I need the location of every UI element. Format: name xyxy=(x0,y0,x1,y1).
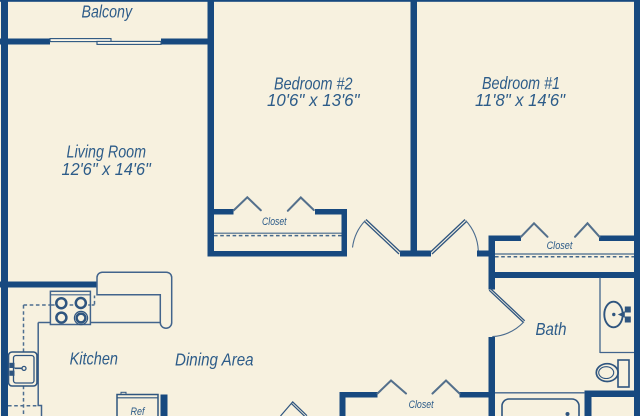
svg-text:Kitchen: Kitchen xyxy=(70,349,118,369)
svg-text:Dining Area: Dining Area xyxy=(175,349,254,369)
svg-text:Ref: Ref xyxy=(131,406,146,416)
svg-text:Closet: Closet xyxy=(547,240,574,252)
svg-text:Balcony: Balcony xyxy=(82,1,134,21)
svg-text:12'6" x 14'6": 12'6" x 14'6" xyxy=(62,159,152,179)
svg-text:Bath: Bath xyxy=(536,319,567,339)
svg-text:10'6" x 13'6": 10'6" x 13'6" xyxy=(267,90,360,110)
svg-text:Closet: Closet xyxy=(262,216,287,228)
svg-text:11'8" x 14'6": 11'8" x 14'6" xyxy=(475,90,566,110)
svg-text:Closet: Closet xyxy=(409,399,435,411)
